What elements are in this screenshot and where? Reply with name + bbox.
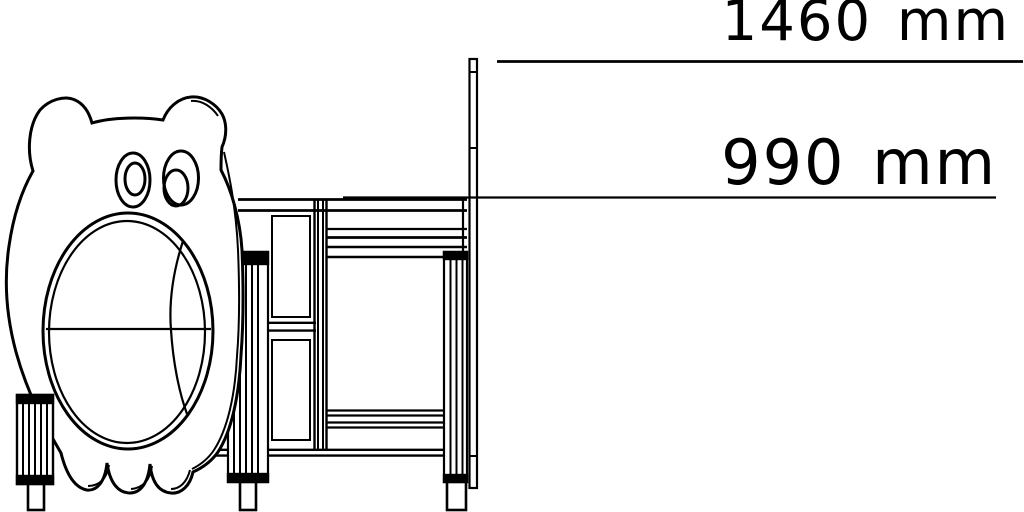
dimension-label-1460: 1460 mm bbox=[722, 0, 1010, 50]
window-frames bbox=[272, 216, 310, 440]
front-left-post bbox=[17, 395, 53, 510]
dimension-label-990: 990 mm bbox=[721, 132, 997, 194]
bottom-rail bbox=[187, 450, 445, 456]
tunnel-opening bbox=[43, 213, 213, 449]
front-left-foot bbox=[28, 484, 44, 510]
bear-rear-foot bbox=[240, 482, 256, 510]
rear-panel-post bbox=[444, 252, 467, 510]
rear-panel-foot bbox=[447, 482, 466, 510]
drawing-canvas: 1460 mm 990 mm bbox=[0, 0, 1024, 512]
lower-rails bbox=[326, 411, 445, 428]
middle-post bbox=[315, 199, 327, 450]
rear-panel-edge-post bbox=[470, 59, 478, 488]
technical-drawing bbox=[0, 0, 1024, 512]
